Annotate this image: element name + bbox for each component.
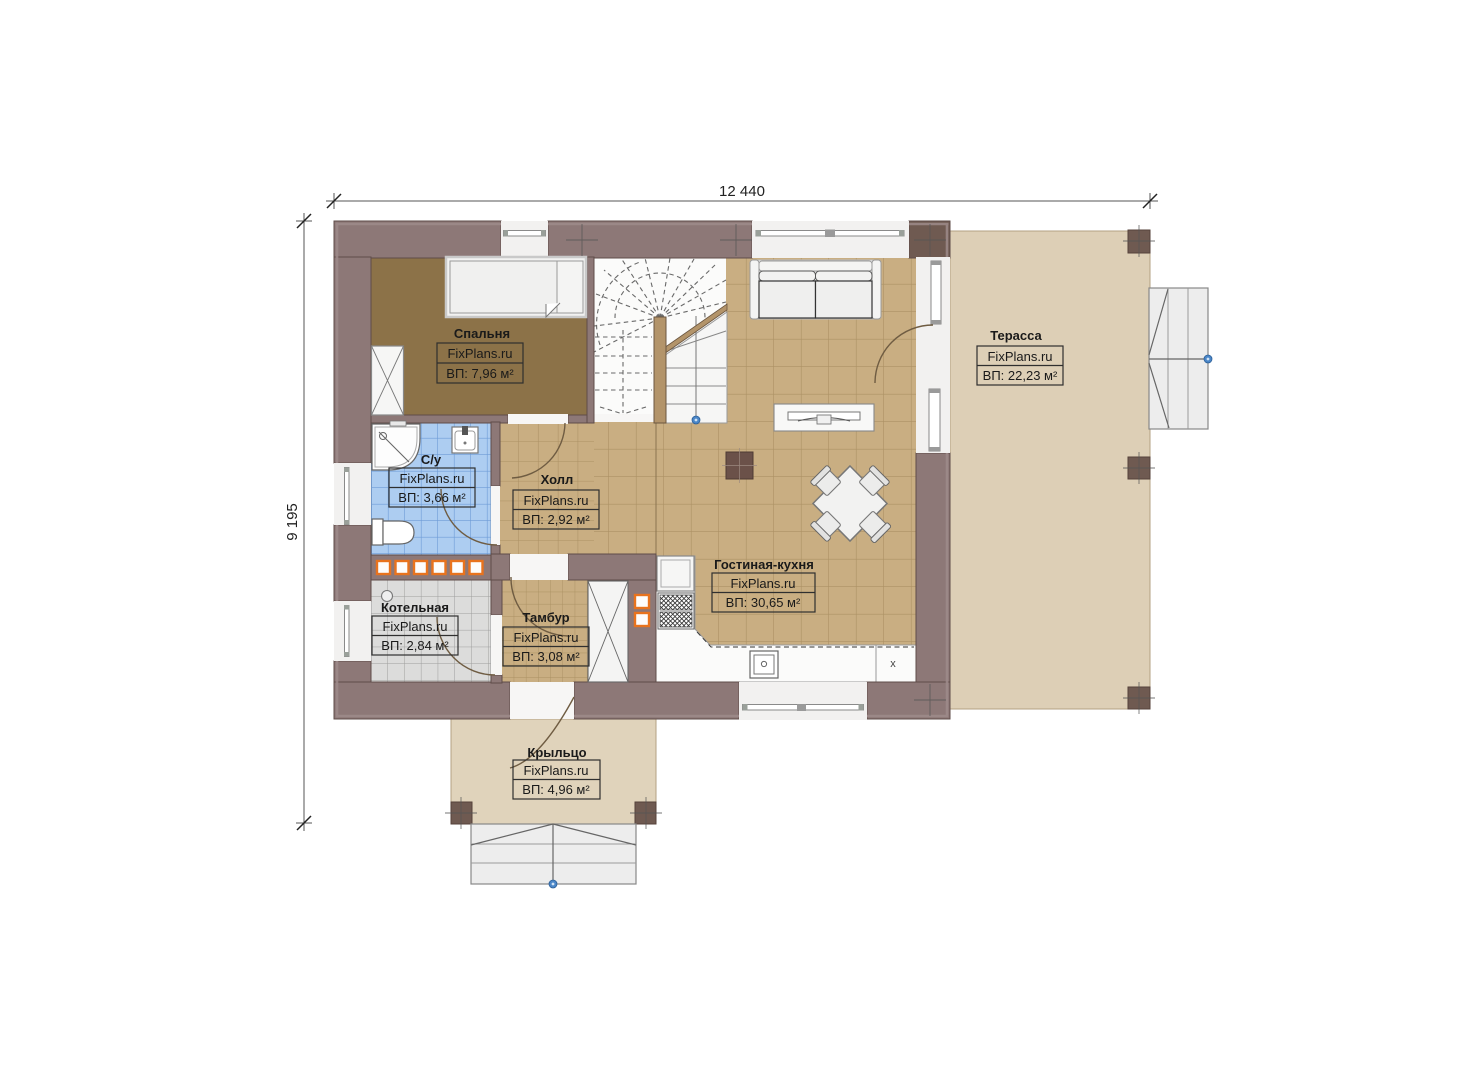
svg-text:FixPlans.ru: FixPlans.ru [399, 471, 464, 486]
svg-text:ВП: 30,65 м²: ВП: 30,65 м² [726, 595, 801, 610]
svg-text:ВП: 3,08 м²: ВП: 3,08 м² [512, 649, 580, 664]
svg-text:FixPlans.ru: FixPlans.ru [513, 630, 578, 645]
svg-text:12 440: 12 440 [719, 183, 765, 200]
svg-text:FixPlans.ru: FixPlans.ru [730, 576, 795, 591]
svg-text:Котельная: Котельная [381, 600, 449, 615]
svg-text:FixPlans.ru: FixPlans.ru [447, 346, 512, 361]
svg-text:Крыльцо: Крыльцо [527, 745, 586, 760]
svg-text:Холл: Холл [541, 472, 574, 487]
svg-text:FixPlans.ru: FixPlans.ru [382, 619, 447, 634]
svg-text:ВП: 7,96 м²: ВП: 7,96 м² [446, 366, 514, 381]
svg-text:С/у: С/у [421, 452, 442, 467]
svg-text:x: x [890, 658, 896, 670]
svg-text:9 195: 9 195 [284, 503, 301, 541]
svg-text:Гостиная-кухня: Гостиная-кухня [714, 557, 814, 572]
svg-text:FixPlans.ru: FixPlans.ru [987, 349, 1052, 364]
svg-text:Тамбур: Тамбур [522, 610, 569, 625]
svg-text:ВП: 3,66 м²: ВП: 3,66 м² [398, 490, 466, 505]
svg-text:FixPlans.ru: FixPlans.ru [523, 493, 588, 508]
svg-text:ВП: 2,92 м²: ВП: 2,92 м² [522, 512, 590, 527]
svg-text:ВП: 4,96 м²: ВП: 4,96 м² [522, 782, 590, 797]
svg-text:ВП: 2,84 м²: ВП: 2,84 м² [381, 638, 449, 653]
svg-text:Спальня: Спальня [454, 326, 510, 341]
svg-text:FixPlans.ru: FixPlans.ru [523, 763, 588, 778]
svg-text:ВП: 22,23 м²: ВП: 22,23 м² [983, 368, 1058, 383]
svg-text:Терасса: Терасса [990, 328, 1042, 343]
